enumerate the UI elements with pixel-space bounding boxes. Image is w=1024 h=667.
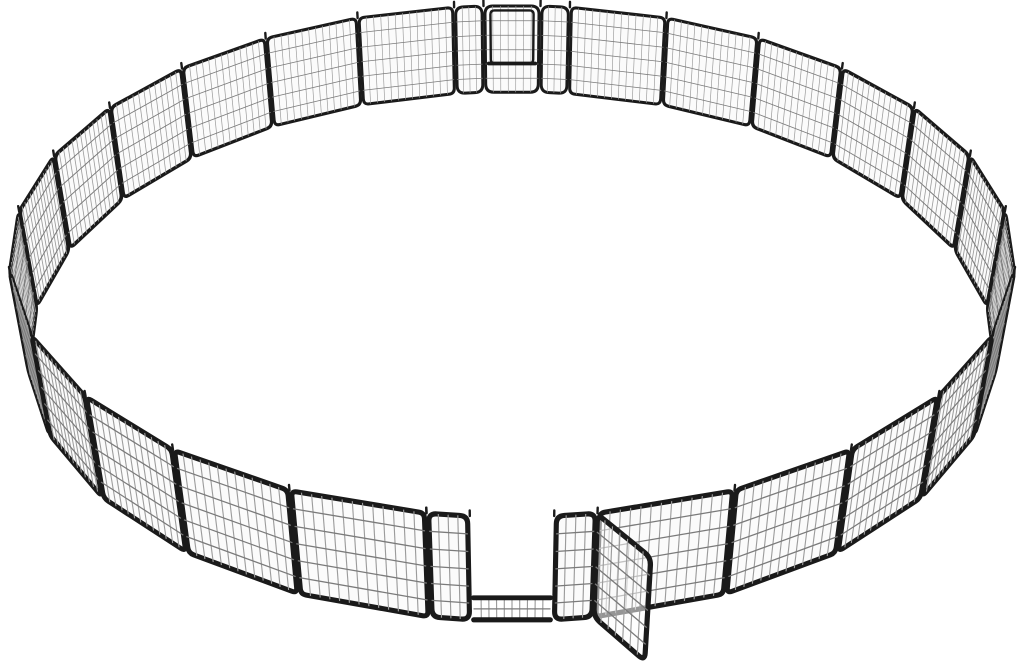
- fence-panel: [292, 492, 428, 616]
- gate-side-strip: [541, 6, 568, 93]
- fence-panel: [570, 8, 665, 104]
- fence-panel: [267, 19, 360, 125]
- gate-side-strip: [429, 514, 470, 619]
- back-gate-door: [485, 6, 539, 92]
- gate-side-strip: [555, 514, 596, 619]
- gate-side-strip: [456, 6, 483, 93]
- product-image-canvas: [0, 0, 1024, 667]
- fence-panel: [663, 19, 756, 125]
- playpen-product-photo: [0, 0, 1024, 667]
- fence-panel: [359, 8, 454, 104]
